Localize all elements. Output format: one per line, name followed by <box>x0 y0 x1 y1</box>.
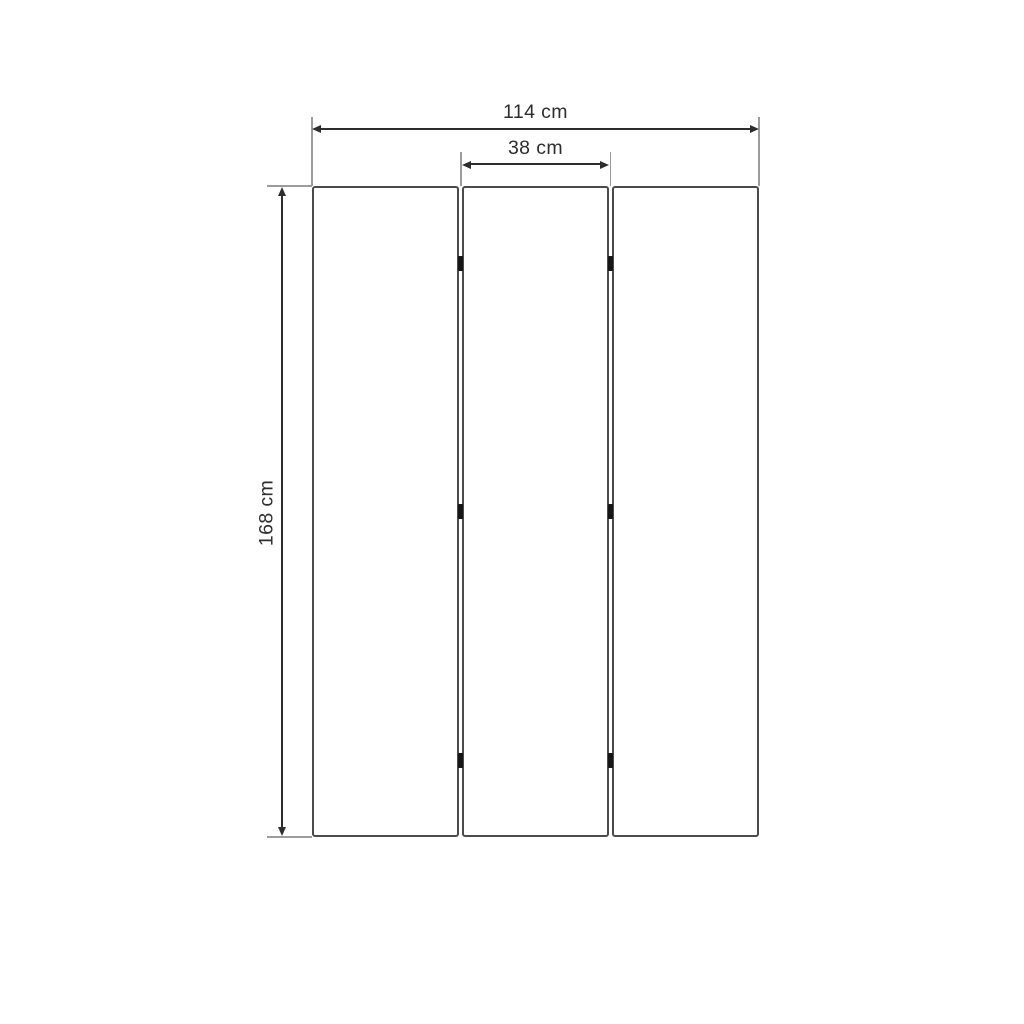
dimension-diagram: 114 cm 38 cm 168 cm <box>0 0 1024 1024</box>
hinge-right-gap-bottom <box>608 753 613 768</box>
panel-middle <box>462 186 609 837</box>
arrowhead-height-bottom-icon <box>278 827 286 836</box>
hinge-left-gap-bottom <box>458 753 463 768</box>
hinge-left-gap-top <box>458 256 463 271</box>
arrowhead-width-left-icon <box>312 125 321 133</box>
panel-right <box>612 186 759 837</box>
arrowhead-panel-right-icon <box>600 161 609 169</box>
arrowhead-panel-left-icon <box>462 161 471 169</box>
extension-line-height-top <box>267 185 312 187</box>
extension-line-panel-right <box>610 152 612 186</box>
panel-width-dimension-line <box>466 163 605 165</box>
width-dimension-line <box>316 128 753 130</box>
hinge-right-gap-middle <box>608 504 613 519</box>
panel-width-dimension-label: 38 cm <box>462 139 609 159</box>
hinge-left-gap-middle <box>458 504 463 519</box>
arrowhead-width-right-icon <box>750 125 759 133</box>
height-dimension-line <box>281 191 283 832</box>
arrowhead-height-top-icon <box>278 187 286 196</box>
hinge-right-gap-top <box>608 256 613 271</box>
extension-line-height-bottom <box>267 836 312 838</box>
width-dimension-label: 114 cm <box>312 103 759 123</box>
panel-left <box>312 186 459 837</box>
